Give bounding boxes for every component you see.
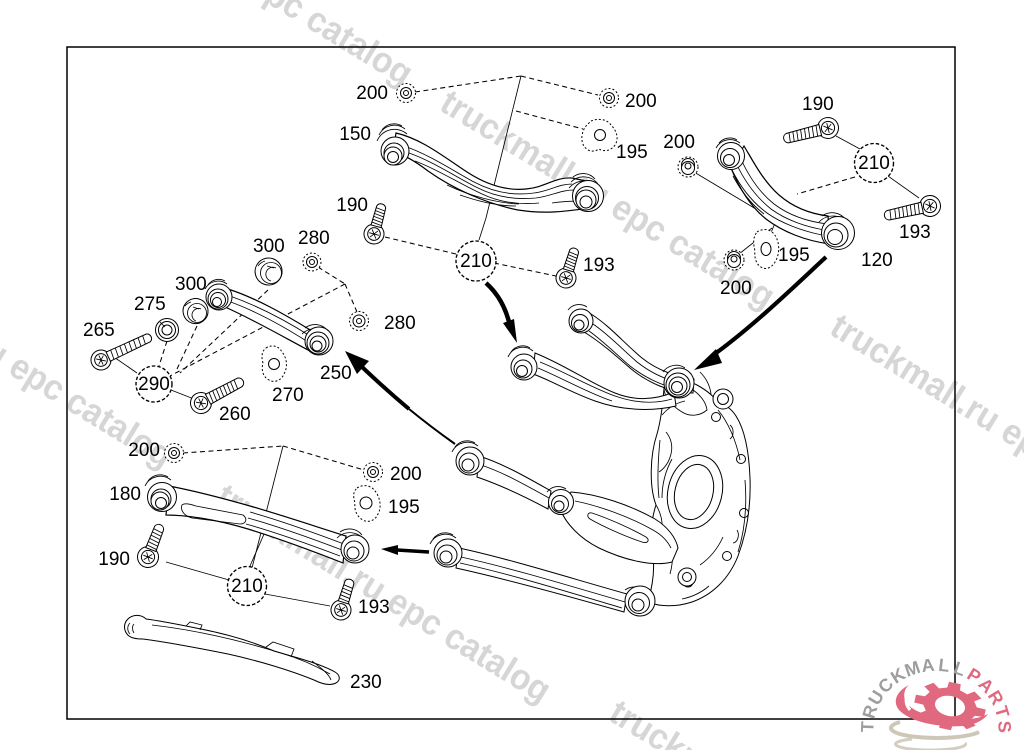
svg-text:210: 210 xyxy=(858,153,890,174)
svg-text:280: 280 xyxy=(298,228,330,249)
svg-text:195: 195 xyxy=(778,245,810,266)
svg-text:250: 250 xyxy=(320,363,352,384)
svg-text:200: 200 xyxy=(128,440,160,461)
svg-text:190: 190 xyxy=(336,195,368,216)
svg-text:260: 260 xyxy=(219,404,251,425)
svg-text:265: 265 xyxy=(83,320,115,341)
svg-text:190: 190 xyxy=(98,549,130,570)
svg-text:180: 180 xyxy=(109,484,141,505)
svg-text:T: T xyxy=(857,721,877,733)
svg-text:S: S xyxy=(994,720,1014,733)
svg-text:210: 210 xyxy=(231,576,263,597)
svg-text:195: 195 xyxy=(388,497,420,518)
svg-text:200: 200 xyxy=(390,464,422,485)
svg-text:195: 195 xyxy=(616,142,648,163)
svg-text:120: 120 xyxy=(861,250,893,271)
svg-text:200: 200 xyxy=(720,278,752,299)
svg-text:193: 193 xyxy=(899,222,931,243)
svg-text:275: 275 xyxy=(134,294,166,315)
svg-text:270: 270 xyxy=(272,385,304,406)
svg-text:200: 200 xyxy=(625,91,657,112)
svg-text:190: 190 xyxy=(802,94,834,115)
svg-text:200: 200 xyxy=(356,83,388,104)
svg-text:280: 280 xyxy=(384,313,416,334)
svg-text:A: A xyxy=(920,655,935,676)
svg-text:300: 300 xyxy=(253,236,285,257)
svg-text:193: 193 xyxy=(583,255,615,276)
svg-text:193: 193 xyxy=(358,597,390,618)
svg-text:150: 150 xyxy=(339,124,371,145)
svg-text:L: L xyxy=(937,655,950,676)
svg-text:290: 290 xyxy=(138,374,170,395)
svg-text:300: 300 xyxy=(175,274,207,295)
svg-text:210: 210 xyxy=(460,251,492,272)
svg-text:230: 230 xyxy=(350,672,382,693)
svg-text:200: 200 xyxy=(663,132,695,153)
